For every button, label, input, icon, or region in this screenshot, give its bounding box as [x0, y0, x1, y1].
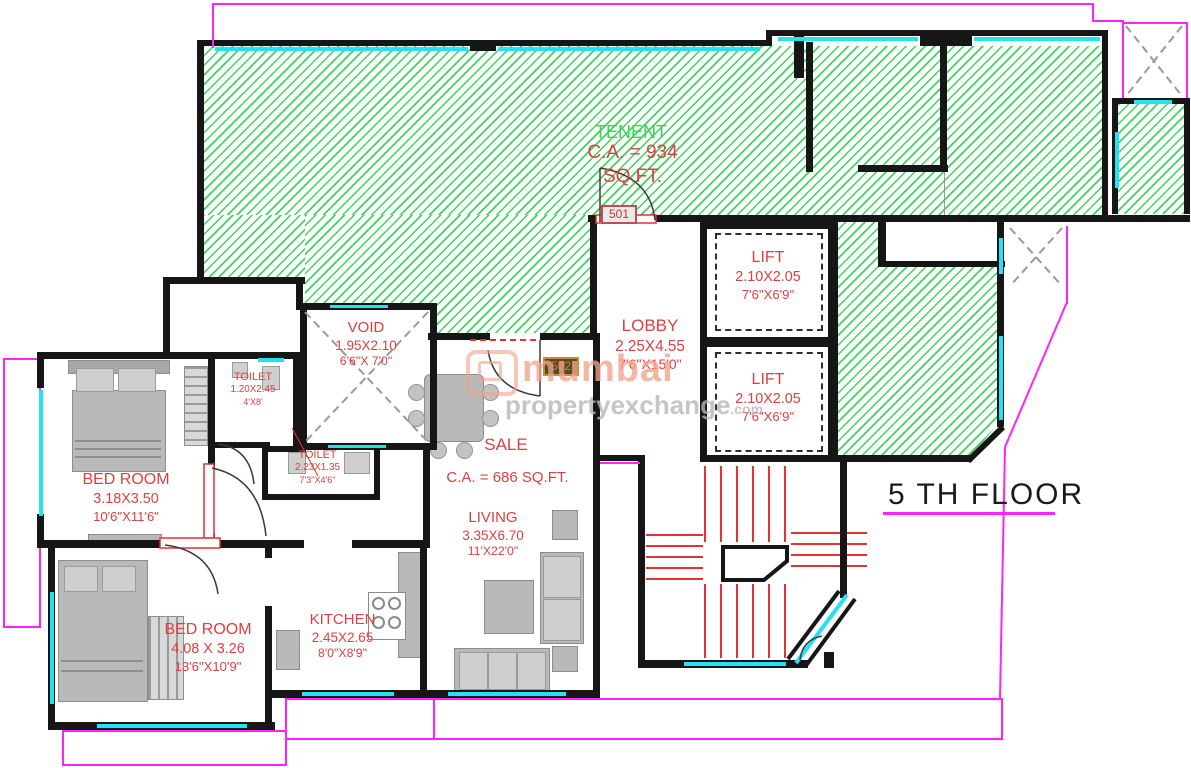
- duct: [1122, 22, 1188, 102]
- sofa-cushion: [517, 652, 546, 690]
- wall: [1184, 98, 1190, 214]
- floor-title-underline: [883, 512, 1055, 515]
- window: [97, 724, 247, 728]
- door-number-501: 501: [601, 205, 637, 224]
- wall: [880, 261, 1005, 267]
- balcony: [3, 358, 41, 628]
- room-name: LOBBY: [600, 315, 700, 337]
- chair: [482, 410, 499, 427]
- tenant-hatch-area: [203, 215, 305, 277]
- wall: [208, 534, 215, 548]
- room-label-bedroom-bottom: BED ROOM 4.08 X 3.26 13'6"X10'9": [158, 620, 258, 676]
- floor-plan: LOBBY 2.25X4.55 7'6"X15'0" LIFT 2.10X2.0…: [0, 0, 1191, 768]
- window: [1134, 100, 1172, 104]
- window: [778, 37, 918, 41]
- wall: [197, 40, 204, 283]
- window: [330, 305, 388, 308]
- room-name: TOILET: [213, 370, 293, 384]
- window: [258, 358, 284, 362]
- tv-unit: [552, 510, 578, 540]
- watermark-word: propertyexchange: [505, 390, 730, 420]
- window: [974, 37, 1100, 41]
- wall: [700, 337, 835, 347]
- balcony-boundary: [1092, 20, 1124, 22]
- stove-burner: [372, 597, 385, 610]
- wall: [352, 540, 427, 548]
- sale-name: SALE: [470, 434, 542, 456]
- room-label-toilet-big: TOILET 2.23X1.35 7'3"X4'6": [275, 448, 360, 486]
- wall: [940, 34, 947, 172]
- pillow: [118, 368, 156, 392]
- bed: [72, 390, 166, 472]
- wall: [824, 652, 834, 668]
- wall: [794, 36, 804, 78]
- wall: [208, 442, 270, 448]
- wall: [37, 540, 162, 548]
- duct: [1007, 224, 1065, 288]
- room-dim-m: 1.95X2.10: [316, 337, 416, 354]
- room-label-kitchen: KITCHEN 2.45X2.65 8'0"X8'9": [295, 610, 390, 662]
- sale-unit-label: SALE: [470, 434, 542, 456]
- room-name: BED ROOM: [76, 470, 176, 490]
- room-dim-m: 2.23X1.35: [275, 462, 360, 475]
- wall: [293, 352, 302, 450]
- wall: [428, 333, 490, 340]
- window: [50, 592, 54, 704]
- wall: [638, 458, 645, 668]
- bed-line: [75, 440, 161, 442]
- room-name: TOILET: [275, 448, 360, 462]
- wardrobe: [184, 366, 208, 446]
- bed-line: [61, 670, 143, 672]
- window: [1115, 132, 1119, 188]
- room-name: KITCHEN: [295, 610, 390, 629]
- stair-flight: [791, 532, 867, 576]
- chair: [408, 384, 425, 401]
- tenant-area: C.A. = 934 SQ.FT.: [560, 141, 705, 190]
- room-dim-m: 3.18X3.50: [76, 490, 176, 508]
- wall: [858, 165, 948, 172]
- sofa-cushion: [459, 652, 488, 690]
- room-dim-ft: 10'6"X11'6": [76, 509, 176, 526]
- wall: [423, 450, 430, 548]
- room-dim-m: 4.08 X 3.26: [158, 640, 258, 658]
- wall: [700, 222, 835, 229]
- room-dim-ft: 7'3"X4'6": [275, 475, 360, 487]
- sale-area-label: C.A. = 686 SQ.FT.: [440, 468, 575, 487]
- pillow: [64, 566, 98, 592]
- window: [215, 47, 468, 51]
- wall: [262, 446, 268, 500]
- wall: [470, 40, 496, 51]
- room-label-void: VOID 1.95X2.10 6'6"X 7'0": [316, 318, 416, 370]
- floor-title: 5 TH FLOOR: [888, 478, 1084, 512]
- wall: [1102, 30, 1108, 222]
- tenant-hatch-area: [1118, 104, 1184, 214]
- room-dim-ft: 11'X22'0": [443, 544, 543, 560]
- room-name: LIFT: [718, 248, 818, 268]
- window: [999, 336, 1003, 420]
- coffee-table: [484, 580, 534, 634]
- balcony-boundary: [1066, 226, 1068, 304]
- wall: [590, 222, 597, 340]
- bed-line: [75, 456, 161, 458]
- room-name: VOID: [316, 318, 416, 337]
- wall: [265, 548, 272, 558]
- chair: [408, 410, 425, 427]
- wall: [163, 277, 170, 355]
- watermark-brand-line2: propertyexchange.com: [505, 390, 763, 421]
- wall: [588, 215, 600, 222]
- room-label-living: LIVING 3.35X6.70 11'X22'0": [443, 508, 543, 560]
- wall: [828, 222, 838, 462]
- watermark-logo-inner: [478, 361, 502, 381]
- balcony-boundary: [600, 462, 640, 464]
- sofa-cushion: [543, 599, 581, 641]
- pillow: [102, 566, 136, 592]
- watermark-tld: .com: [730, 401, 763, 417]
- room-label-lift-upper: LIFT 2.10X2.05 7'6"X6'9": [718, 248, 818, 304]
- side-table: [552, 646, 578, 672]
- sofa-cushion: [543, 556, 581, 598]
- window: [498, 47, 760, 51]
- wall-notch: [884, 222, 1002, 263]
- tenant-hatch-area: [305, 215, 430, 303]
- room-dim-ft: 6'6"X 7'0": [316, 354, 416, 370]
- stair-flight: [704, 584, 790, 658]
- room-dim-ft: 13'6"X10'9": [158, 659, 258, 676]
- wall: [420, 548, 427, 692]
- window: [448, 692, 566, 696]
- bed-line: [75, 448, 161, 450]
- bed-line: [61, 660, 143, 662]
- sofa-cushion: [488, 652, 517, 690]
- balcony-boundary: [212, 3, 214, 48]
- balcony: [433, 698, 1003, 740]
- window: [999, 238, 1003, 274]
- wall: [540, 333, 597, 340]
- balcony: [285, 698, 437, 740]
- room-name: LIVING: [443, 508, 543, 527]
- wall: [272, 540, 304, 548]
- tenant-hatch-area: [430, 215, 590, 333]
- room-dim-ft: 8'0"X8'9": [295, 646, 390, 662]
- stair-flight: [646, 534, 703, 580]
- room-dim-ft: 4'X8': [213, 397, 293, 409]
- room-name: LIFT: [718, 370, 818, 390]
- watermark-brand: mumbai: [522, 348, 674, 391]
- room-dim-m: 1.20X2.45: [213, 384, 293, 397]
- room-dim-m: 2.10X2.05: [718, 268, 818, 286]
- wall: [37, 352, 44, 388]
- room-label-toilet-small: TOILET 1.20X2.45 4'X8': [213, 370, 293, 408]
- window: [39, 390, 43, 516]
- wall: [430, 303, 437, 450]
- balcony-boundary: [212, 3, 774, 5]
- wall: [1108, 215, 1190, 222]
- window: [684, 662, 786, 666]
- pillow: [76, 368, 114, 392]
- wall: [806, 42, 813, 172]
- wall: [374, 446, 380, 500]
- room-name: BED ROOM: [158, 620, 258, 640]
- stair-flight: [704, 466, 790, 542]
- room-dim-m: 3.35X6.70: [443, 527, 543, 544]
- wall: [655, 215, 1108, 222]
- tenant-area-label: C.A. = 934 SQ.FT.: [560, 141, 705, 190]
- sale-area: C.A. = 686 SQ.FT.: [440, 468, 575, 487]
- window: [302, 692, 394, 696]
- wall: [840, 458, 847, 598]
- room-dim-ft: 7'6"X6'9": [718, 287, 818, 304]
- wall: [944, 172, 945, 215]
- wall: [163, 277, 305, 284]
- room-dim-m: 2.45X2.65: [295, 629, 390, 646]
- stove-burner: [388, 597, 401, 610]
- balcony-boundary: [772, 3, 1094, 5]
- wall: [262, 494, 380, 500]
- wall: [265, 606, 272, 730]
- room-label-bedroom-top: BED ROOM 3.18X3.50 10'6"X11'6": [76, 470, 176, 526]
- balcony: [62, 730, 287, 766]
